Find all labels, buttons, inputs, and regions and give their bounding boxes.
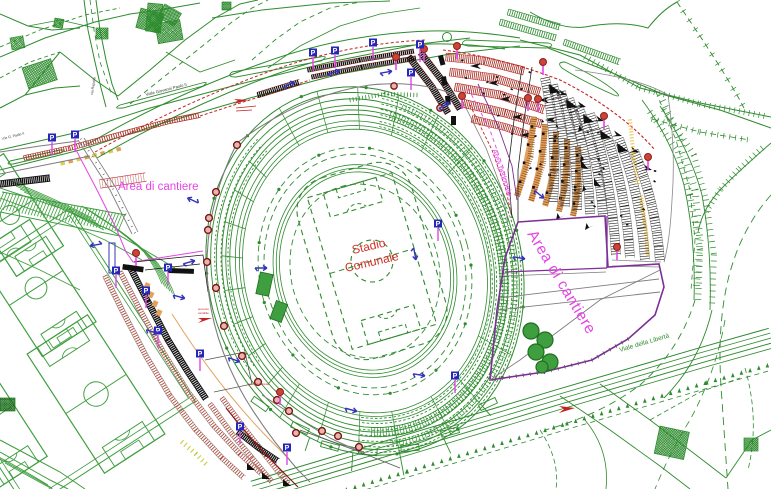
svg-text:P: P — [418, 42, 423, 49]
svg-text:P: P — [409, 70, 414, 77]
svg-text:P: P — [453, 373, 458, 380]
svg-text:P: P — [144, 288, 149, 295]
svg-text:P: P — [285, 445, 290, 452]
svg-text:P: P — [436, 221, 441, 228]
svg-text:P: P — [166, 265, 171, 272]
svg-text:carrabile: carrabile — [198, 311, 209, 315]
svg-text:Area di cantiere: Area di cantiere — [118, 181, 199, 193]
svg-text:P: P — [333, 48, 338, 55]
svg-text:P: P — [311, 50, 316, 57]
svg-text:P: P — [198, 351, 203, 358]
svg-text:P: P — [114, 268, 119, 275]
svg-text:P: P — [50, 135, 55, 142]
svg-text:P: P — [73, 132, 78, 139]
svg-text:percorso pedonale: percorso pedonale — [248, 382, 270, 386]
svg-text:P: P — [371, 40, 376, 47]
svg-text:P: P — [238, 424, 243, 431]
